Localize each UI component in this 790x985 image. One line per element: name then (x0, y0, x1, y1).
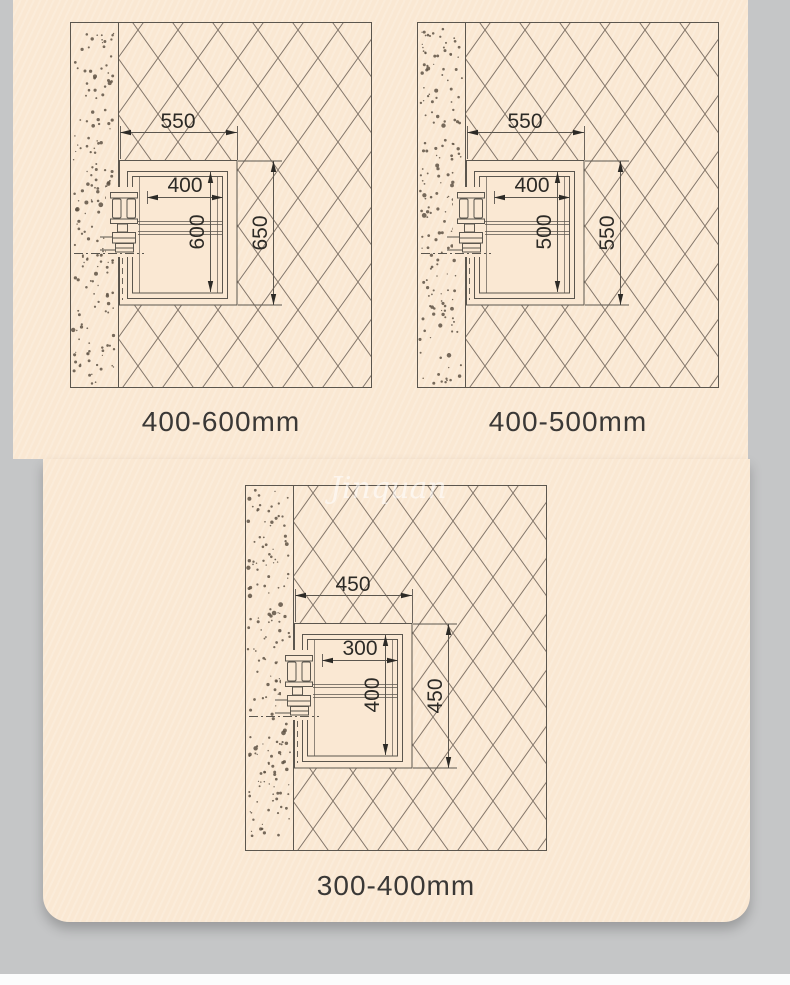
dim-opening-height-value: 450 (424, 678, 447, 713)
installation-drawing: 450 300 400 450 (245, 485, 547, 851)
caption-top-right: 400-500mm (417, 405, 719, 439)
dim-car-height-value: 600 (186, 214, 209, 249)
diagram-bottom-center: 450 300 400 450 (245, 485, 547, 851)
dim-opening-height-value: 550 (596, 215, 619, 250)
dim-opening-width-value: 550 (160, 110, 195, 133)
caption-top-left: 400-600mm (70, 405, 372, 439)
drive-mechanism (275, 650, 313, 720)
dim-opening-height-value: 650 (249, 215, 272, 250)
page-bottom-strip (0, 974, 790, 985)
product-spec-image: Jinquan (0, 0, 790, 985)
installation-drawing: 550 400 500 550 (417, 22, 719, 388)
dim-car-height-value: 500 (533, 214, 556, 249)
dim-opening-width-value: 550 (507, 110, 542, 133)
dim-car-width-value: 300 (342, 637, 377, 660)
dim-car-height-value: 400 (361, 677, 384, 712)
dim-car-width-value: 400 (167, 174, 202, 197)
diagram-top-left: 550 400 600 650 (70, 22, 372, 388)
diagram-top-right: 550 400 500 550 (417, 22, 719, 388)
dim-opening-width-value: 450 (335, 573, 370, 596)
installation-drawing: 550 400 600 650 (70, 22, 372, 388)
caption-bottom-center: 300-400mm (245, 869, 547, 903)
dim-car-width-value: 400 (514, 174, 549, 197)
